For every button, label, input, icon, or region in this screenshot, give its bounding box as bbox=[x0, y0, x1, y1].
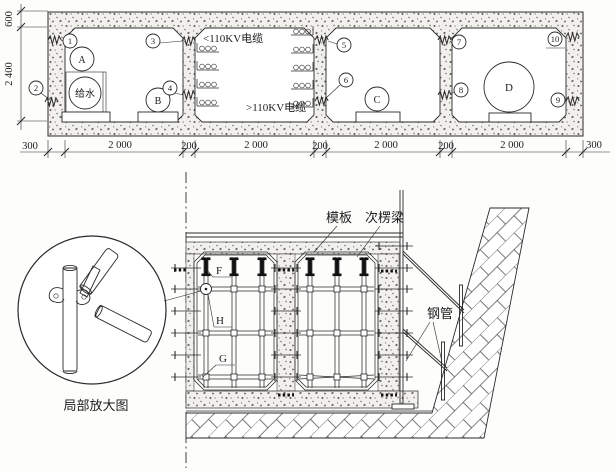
dim-2000-4: 2 000 bbox=[500, 140, 524, 151]
horizontal-dimensions: 300 2 000 200 2 000 200 2 000 200 2 000 … bbox=[20, 140, 610, 158]
detail-view-title: 局部放大图 bbox=[63, 398, 128, 413]
pipe-c-label: C bbox=[374, 95, 381, 106]
pipe-d: D bbox=[484, 62, 534, 122]
formwork-panel-1 bbox=[194, 252, 277, 390]
dim-2000-2: 2 000 bbox=[244, 140, 268, 151]
callout-8: 8 bbox=[459, 85, 463, 95]
cable-note-lt110kv: <110KV电缆 bbox=[203, 32, 263, 45]
right-wall-concrete bbox=[378, 254, 399, 391]
top-form-ties bbox=[202, 258, 267, 277]
label-h: H bbox=[216, 315, 224, 327]
dim-2000-1: 2 000 bbox=[108, 140, 132, 151]
callout-5: 5 bbox=[342, 40, 346, 50]
label-g: G bbox=[219, 353, 227, 365]
steel-pipe-label: 钢管 bbox=[427, 306, 453, 321]
dim-200-2: 200 bbox=[312, 141, 328, 152]
top-form-ties bbox=[306, 258, 369, 277]
pipe-d-label: D bbox=[505, 82, 513, 94]
callout-3: 3 bbox=[151, 36, 155, 46]
dim-200-1: 200 bbox=[181, 141, 197, 152]
secondary-beam-label: 次楞梁 bbox=[365, 210, 404, 225]
dim-2000-3: 2 000 bbox=[374, 140, 398, 151]
detail-balloon: 局部放大图 bbox=[18, 236, 201, 413]
pipe-b-pedestal bbox=[138, 112, 178, 122]
cross-section-drawing: A 给水 B C D bbox=[4, 4, 610, 158]
dim-600: 600 bbox=[4, 11, 15, 27]
dim-200-3: 200 bbox=[438, 141, 454, 152]
pipe-d-pedestal bbox=[489, 113, 531, 122]
pipe-a-label: A bbox=[78, 55, 86, 66]
vertical-dimensions: 600 2 400 bbox=[4, 4, 48, 130]
left-concrete bbox=[186, 254, 194, 391]
callout-2: 2 bbox=[34, 83, 38, 93]
callout-9: 9 bbox=[556, 95, 560, 105]
formwork-label: 模板 bbox=[326, 210, 352, 225]
drawing-sheet: A 给水 B C D bbox=[0, 0, 615, 471]
dim-2400: 2 400 bbox=[4, 62, 15, 86]
callout-10: 10 bbox=[551, 34, 560, 44]
pipe-c-pedestal bbox=[356, 112, 400, 122]
callout-6: 6 bbox=[344, 75, 348, 85]
label-f: F bbox=[216, 265, 222, 277]
water-pipe-base bbox=[62, 112, 110, 122]
callout-1: 1 bbox=[68, 36, 72, 46]
technical-drawing: A 给水 B C D bbox=[0, 0, 615, 471]
dim-300-right: 300 bbox=[586, 140, 602, 151]
pipe-b-label: B bbox=[155, 96, 162, 107]
waler-nodes bbox=[307, 286, 367, 380]
letter-callouts: F H G bbox=[201, 265, 236, 377]
dim-300-left: 300 bbox=[22, 141, 38, 152]
waler-nodes bbox=[203, 286, 265, 380]
cable-note-gt110kv: >110KV电缆 bbox=[246, 101, 306, 114]
formwork-detail-drawing: 模板 次楞梁 钢管 F H G bbox=[18, 172, 529, 468]
middle-wall-concrete bbox=[277, 254, 295, 391]
formwork-panel-2 bbox=[295, 252, 378, 390]
callout-7: 7 bbox=[457, 37, 461, 47]
water-supply-label: 给水 bbox=[75, 87, 95, 100]
